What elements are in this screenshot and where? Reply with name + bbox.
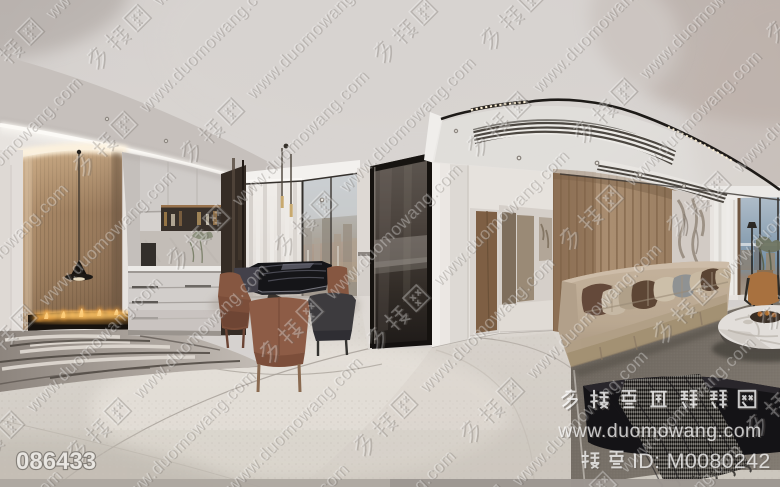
svg-text:ID: M0080242: ID: M0080242 bbox=[632, 449, 771, 473]
svg-text:www.duomowang.com: www.duomowang.com bbox=[434, 0, 579, 4]
svg-text:www.duomowang.com: www.duomowang.com bbox=[557, 420, 762, 442]
svg-text:www.duomowang.com: www.duomowang.com bbox=[634, 0, 779, 84]
svg-text:www.duomowang.com: www.duomowang.com bbox=[0, 179, 72, 324]
svg-text:086433: 086433 bbox=[16, 448, 96, 475]
svg-text:www.duomowang.com: www.duomowang.com bbox=[149, 0, 294, 10]
svg-text:www.duomowang.com: www.duomowang.com bbox=[436, 0, 581, 4]
svg-text:www.duomowang.com: www.duomowang.com bbox=[147, 0, 292, 10]
